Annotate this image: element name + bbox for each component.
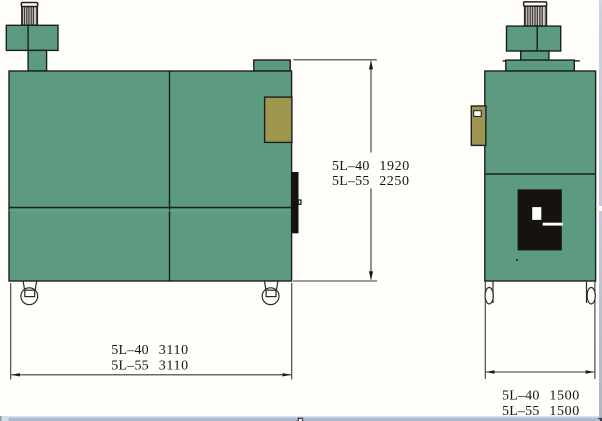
svg-text:5L–55: 5L–55 (111, 358, 149, 373)
svg-text:5L–40: 5L–40 (332, 159, 370, 174)
svg-text:5L–40: 5L–40 (502, 389, 540, 404)
svg-text:1920: 1920 (379, 159, 409, 174)
svg-text:1500: 1500 (549, 389, 579, 404)
svg-text:3110: 3110 (159, 343, 189, 358)
svg-text:5L–55: 5L–55 (332, 174, 370, 189)
svg-text:5L–40: 5L–40 (111, 343, 149, 358)
svg-text:3110: 3110 (159, 358, 189, 373)
svg-text:2250: 2250 (379, 174, 409, 189)
